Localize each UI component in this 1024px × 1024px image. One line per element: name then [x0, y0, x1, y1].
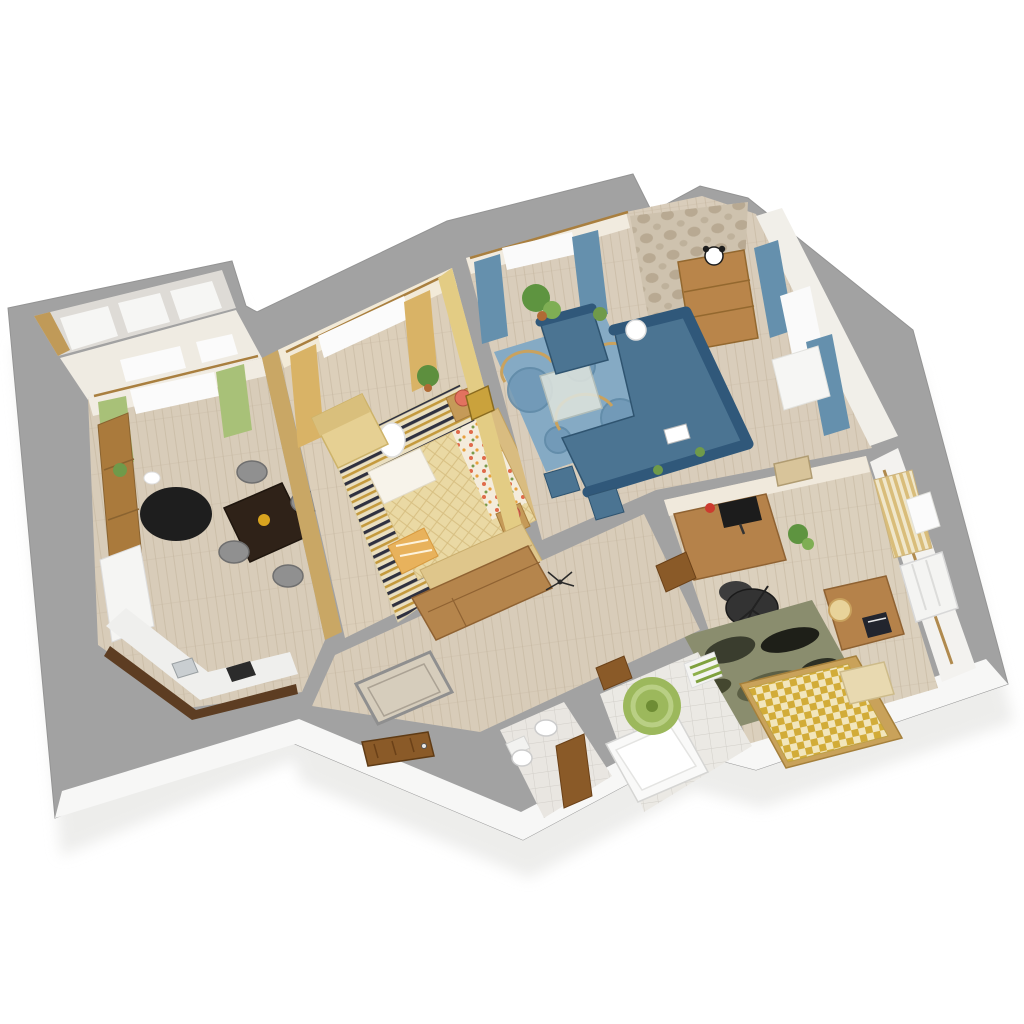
panda-plush-ear-left — [703, 246, 709, 252]
wc-toilet-bowl — [512, 750, 532, 766]
floor-plan-canvas — [0, 0, 1024, 1024]
living-plant-pot — [537, 311, 547, 321]
kitchen-black-rug — [140, 487, 212, 541]
kitchen-shelf-plant — [113, 463, 127, 477]
living-plant-small — [593, 307, 607, 321]
living-wall-grass-2 — [695, 447, 705, 457]
teen-red-mug — [705, 503, 715, 513]
dining-fruit-bowl — [258, 514, 270, 526]
teen-desk-lamp — [829, 599, 851, 621]
dining-chair-3 — [219, 541, 249, 563]
entry-door-knob — [422, 744, 427, 749]
bathroom-green-rug-center — [646, 700, 658, 712]
living-sphere-floor-lamp — [626, 320, 646, 340]
living-wall-grass-1 — [653, 465, 663, 475]
floor-plan-3d-render — [0, 0, 1024, 1024]
bedroom-plant-pot — [424, 384, 432, 392]
wc-sink — [535, 720, 557, 736]
kitchen-white-stool — [144, 472, 160, 484]
bedroom-plant — [417, 365, 439, 387]
dining-chair-4 — [273, 565, 303, 587]
panda-plush-ear-right — [719, 246, 725, 252]
floor-plan-layers — [8, 174, 1014, 878]
teen-plant-2 — [802, 538, 814, 550]
dining-chair-1 — [237, 461, 267, 483]
